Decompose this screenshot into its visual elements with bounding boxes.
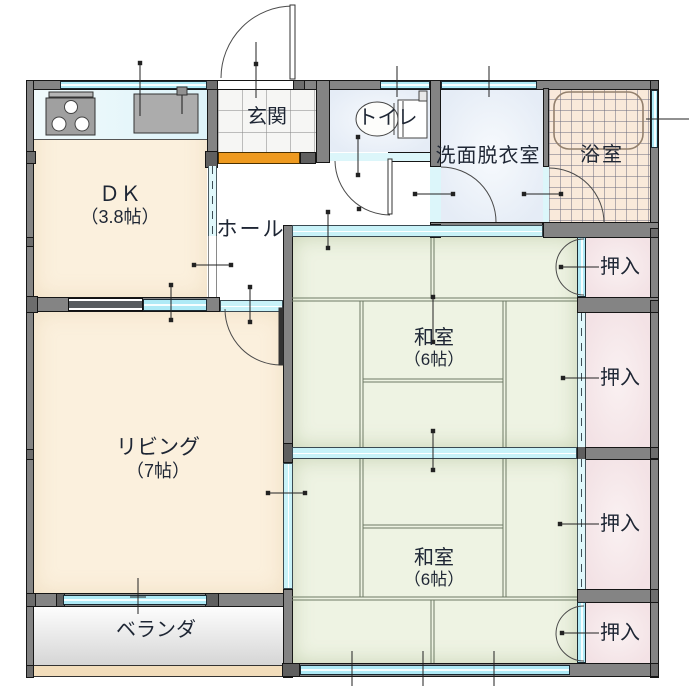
bathroom-door-threshold	[543, 167, 549, 222]
toilet-window	[380, 81, 430, 89]
entrance-door-leaf	[290, 5, 295, 79]
veranda-sill	[32, 665, 283, 677]
wall-joint	[650, 447, 659, 459]
wall-left-exterior	[26, 80, 34, 678]
closet-lower-fusuma	[577, 459, 586, 589]
wall-joint	[650, 300, 659, 313]
dk-living-window	[143, 299, 207, 311]
wall-joint	[26, 449, 34, 460]
wall-joint	[26, 593, 36, 607]
hall-living-sliding-door	[220, 300, 283, 312]
entrance-door-arc	[221, 6, 293, 78]
wall-closet-3-4	[577, 589, 659, 603]
toilet-label: トイレ	[340, 108, 435, 129]
closet-lower-label: 押入	[595, 514, 645, 535]
entrance-label: 玄関	[227, 107, 307, 128]
wall-closet-2-3	[577, 447, 659, 460]
washroom-door-threshold	[430, 167, 441, 222]
veranda-label: ベランダ	[96, 620, 216, 641]
room-partition-sliding-doors	[292, 447, 577, 459]
hall-label: ホール	[211, 219, 291, 241]
japanese-south-window	[300, 665, 570, 675]
washroom-window	[441, 81, 537, 89]
living-label: リビング	[88, 437, 228, 459]
kitchen-window	[60, 81, 207, 89]
bathroom-window	[651, 90, 658, 148]
toilet-door-leaf	[388, 159, 392, 214]
living-size-label: （7帖）	[88, 462, 228, 481]
living-japanese-sliding-doors	[283, 463, 293, 589]
wall-joint	[650, 228, 659, 238]
washroom-label: 洗面脱衣室	[427, 146, 549, 167]
wall-joint	[205, 593, 219, 607]
wall-joint	[650, 589, 659, 603]
wall-dk-entrance	[207, 80, 218, 153]
entrance-step	[218, 152, 300, 164]
wall-joint	[26, 151, 36, 164]
wall-joint	[26, 237, 34, 247]
closet-upper-label: 押入	[595, 368, 645, 389]
floor-plan: 玄関 トイレ 洗面脱衣室 浴室 ＤＫ （3.8帖） ホール 和室 （6帖） 和室…	[0, 0, 692, 698]
japanese-north-size-label: （6帖）	[374, 351, 494, 369]
wall-japanese-north-west	[283, 225, 293, 465]
wall-block-step-east	[300, 152, 316, 164]
dk-hall-opening	[208, 236, 217, 297]
wall-bath-south	[543, 222, 659, 238]
closet-south-label: 押入	[595, 623, 645, 644]
kitchen-pass-counter	[68, 298, 143, 311]
closet-north-doors	[577, 237, 586, 297]
wall-closet-1-2	[577, 297, 659, 313]
japanese-north-sliding-doors	[292, 225, 543, 237]
kitchen-counter	[34, 88, 207, 140]
japanese-south-size-label: （6帖）	[374, 571, 494, 589]
wall-block-bottom-west	[282, 663, 300, 677]
living-veranda-window	[63, 595, 207, 605]
wall-joint	[293, 80, 305, 90]
dk-label: ＤＫ	[60, 184, 180, 206]
entrance-door-opening	[218, 81, 293, 89]
wall-joint	[650, 80, 659, 90]
toilet-door-arc	[335, 161, 390, 215]
dk-size-label: （3.8帖）	[60, 208, 180, 227]
wall-joint	[26, 665, 34, 678]
japanese-north-label: 和室	[374, 328, 494, 349]
wall-joint	[26, 296, 38, 313]
wall-joint	[650, 663, 659, 677]
bathroom-label: 浴室	[562, 145, 642, 166]
closet-north-label: 押入	[595, 257, 645, 278]
closet-south-doors	[577, 602, 586, 663]
toilet-threshold	[330, 153, 430, 161]
japanese-south-label: 和室	[374, 548, 494, 569]
closet-upper-fusuma	[577, 313, 586, 447]
wall-entrance-toilet	[316, 80, 330, 163]
